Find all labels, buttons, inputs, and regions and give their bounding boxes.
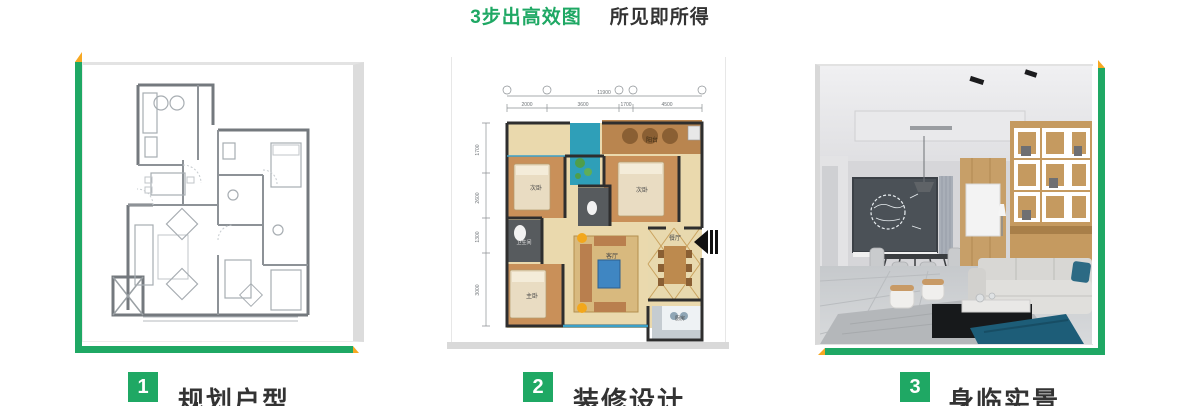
dim-top-4: 4500 [661, 102, 672, 108]
dim-left-2: 2600 [475, 192, 481, 203]
panel3-corner-accent-bottom [818, 348, 825, 355]
room-label-bedroom2b: 次卧 [636, 186, 648, 194]
step2-label: 装修设计 [573, 381, 685, 406]
room-label-bath: 卫生间 [516, 239, 531, 246]
panel1-frame-bottom [75, 346, 353, 353]
room-label-master: 主卧 [526, 292, 538, 300]
panel2-base-shadow [447, 342, 729, 349]
room-label-living: 客厅 [606, 252, 618, 260]
room-label-balcony: 阳台 [646, 136, 658, 144]
room-label-kitchen: 厨房 [675, 315, 685, 322]
panel3-corner-accent-top [1098, 60, 1105, 68]
step1-label: 规划户型 [178, 381, 290, 406]
room-label-bedroom2a: 次卧 [530, 184, 542, 192]
panel1-corner-accent-top [75, 52, 82, 62]
dim-top-2: 3600 [577, 102, 588, 108]
title-highlight: 3步出高效图 [470, 7, 582, 28]
interior-render-image [820, 66, 1092, 344]
step3-label: 身临实景 [948, 381, 1060, 406]
panel3-frame-right [1098, 68, 1105, 355]
panel1-card [82, 62, 364, 342]
dim-left-3: 1300 [475, 231, 481, 242]
dim-top-3: 1700 [620, 102, 631, 108]
step1-number-badge: 1 [128, 372, 158, 402]
dim-top-1: 2000 [521, 102, 532, 108]
room-label-dining: 餐厅 [669, 234, 681, 242]
panel1-corner-accent-bottom [353, 346, 359, 353]
cad-floorplan-image [83, 65, 353, 339]
dim-total: 11900 [597, 90, 611, 96]
title-rest: 所见即所得 [610, 7, 710, 28]
step3-number-badge: 3 [900, 372, 930, 402]
panel2-card: 11900 2000 3600 1700 4500 1700 2600 1300… [451, 57, 726, 342]
promo-banner: 3步出高效图所见即所得 [0, 0, 1180, 406]
color-floorplan-image: 11900 2000 3600 1700 4500 1700 2600 1300… [452, 68, 725, 342]
step2-number-badge: 2 [523, 372, 553, 402]
panel1-frame-left [75, 62, 82, 353]
dim-left-1: 1700 [475, 144, 481, 155]
page-title: 3步出高效图所见即所得 [0, 2, 1180, 29]
dim-left-4: 3000 [475, 284, 481, 295]
panel3-frame-bottom [825, 348, 1105, 355]
panel3-card [815, 64, 1093, 345]
